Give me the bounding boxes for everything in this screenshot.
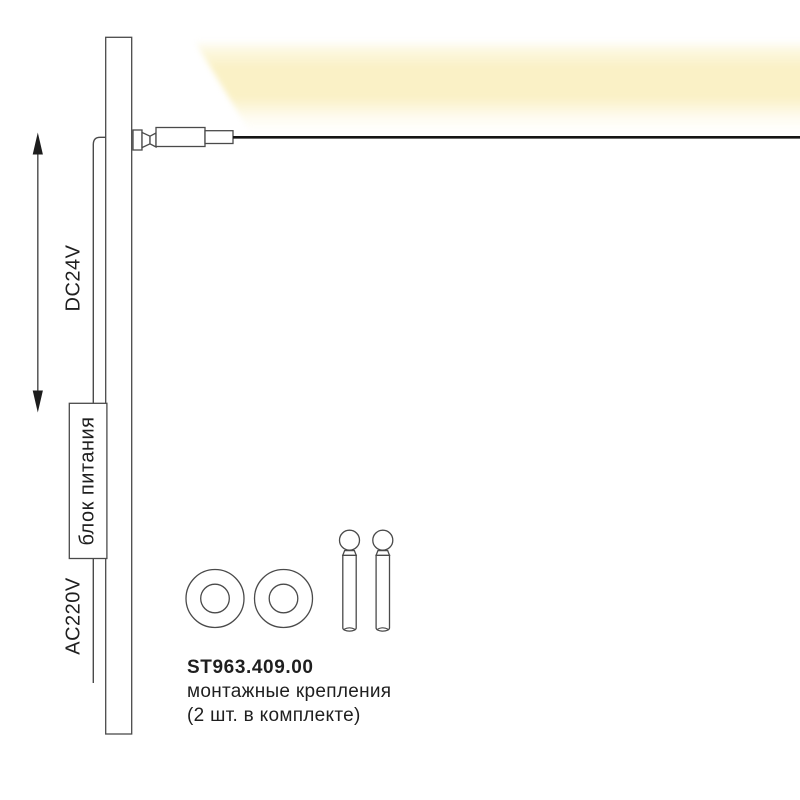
- dc24v-label-text: DC24V: [63, 245, 86, 312]
- product-info: ST963.409.00 монтажные крепления (2 шт. …: [187, 656, 391, 728]
- mounting-pin-2: [373, 530, 393, 631]
- product-name: монтажные крепления: [187, 680, 391, 704]
- strip-connector: [133, 128, 233, 151]
- length-arrow: [33, 133, 43, 413]
- diagram-linework: [0, 0, 800, 800]
- pin-body: [343, 555, 356, 631]
- installation-diagram: DC24V блок питания AC220V ST963.409.00 м…: [0, 0, 800, 800]
- product-code: ST963.409.00: [187, 656, 391, 680]
- arrow-down-icon: [33, 391, 43, 413]
- ac220v-label-text: AC220V: [63, 577, 86, 655]
- connector-barrel: [156, 128, 205, 147]
- mounting-ring-2: [255, 570, 313, 628]
- connector-tip: [205, 131, 233, 144]
- connector-taper: [142, 132, 150, 147]
- connector-taper2: [150, 133, 156, 147]
- mounting-ring-1: [186, 570, 244, 628]
- product-qty-note: (2 шт. в комплекте): [187, 704, 391, 728]
- mounting-pin-1: [340, 530, 360, 631]
- ring-inner: [201, 584, 230, 613]
- wall-panel: [106, 37, 132, 734]
- psu-label-text: блок питания: [77, 416, 100, 545]
- ring-inner: [269, 584, 298, 613]
- arrow-up-icon: [33, 133, 43, 155]
- connector-mount-base: [133, 130, 142, 150]
- pin-neck: [343, 551, 356, 556]
- dc-cable: [93, 137, 105, 403]
- pin-ball: [340, 530, 360, 550]
